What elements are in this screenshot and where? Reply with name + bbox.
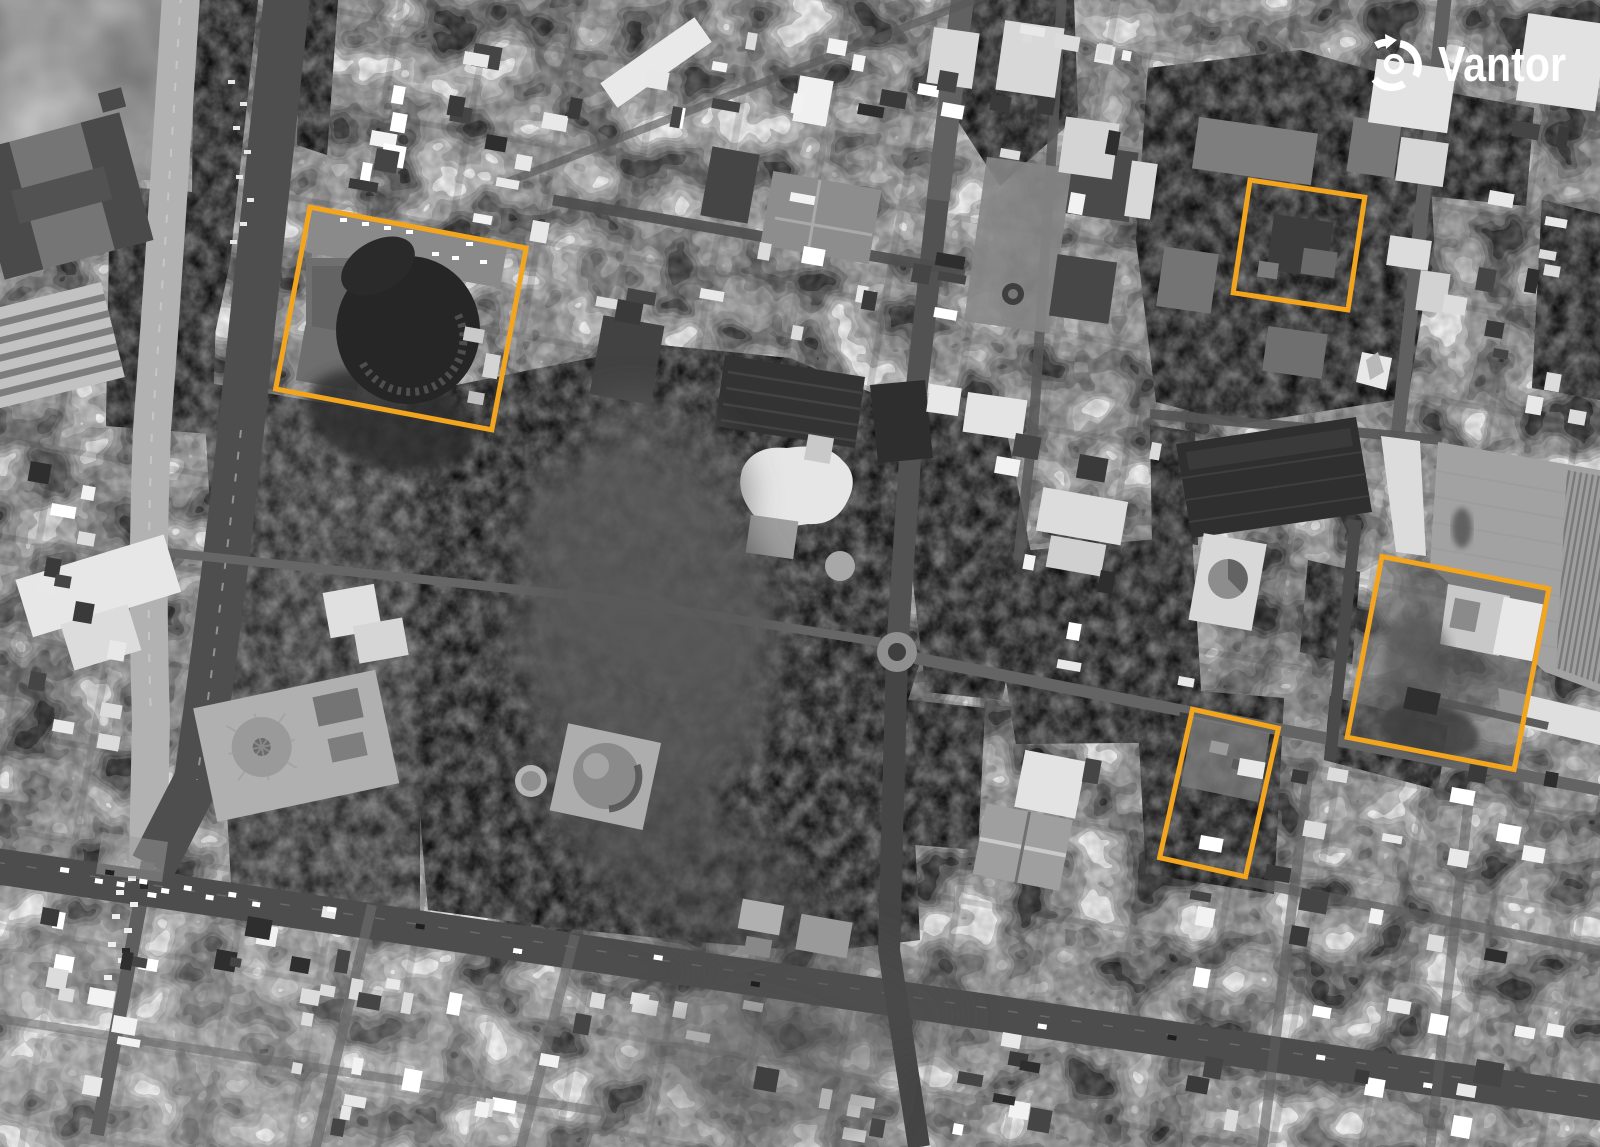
svg-text:Vantor: Vantor bbox=[1438, 38, 1566, 92]
